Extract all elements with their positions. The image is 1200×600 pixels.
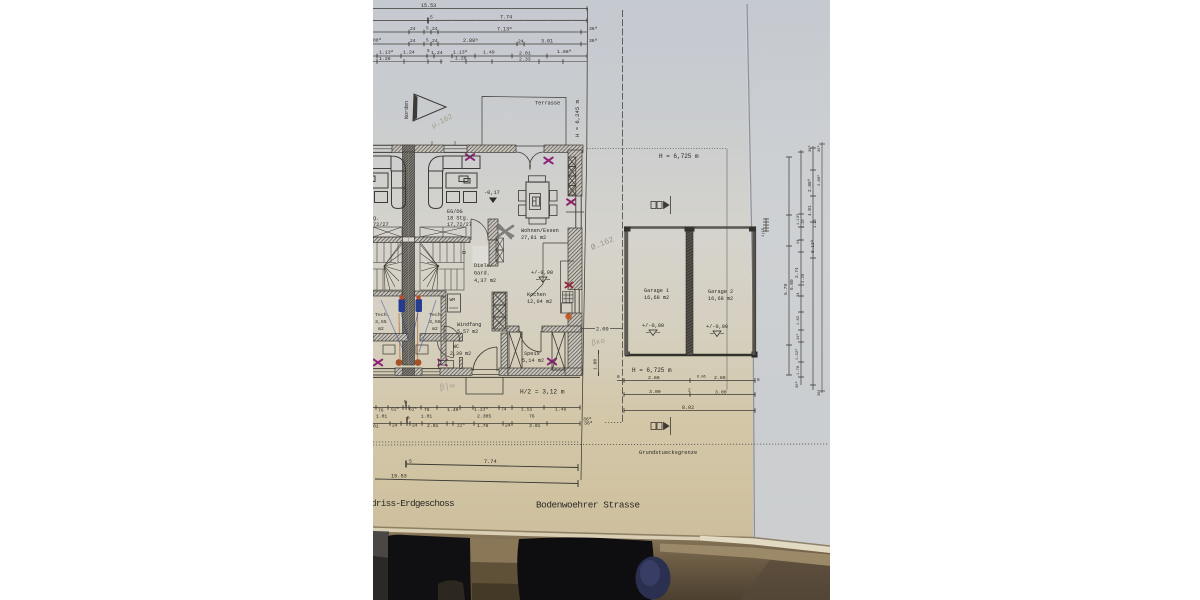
svg-text:1.26: 1.26	[379, 56, 391, 62]
svg-text:7.74: 7.74	[484, 459, 497, 465]
svg-text:Windfang: Windfang	[457, 322, 481, 328]
svg-text:1.13ª: 1.13ª	[796, 214, 801, 225]
svg-text:3,55: 3,55	[375, 319, 387, 325]
svg-text:1.26: 1.26	[802, 219, 806, 228]
svg-text:7.13ª: 7.13ª	[497, 27, 512, 33]
svg-text:7.74: 7.74	[500, 15, 512, 21]
svg-text:2.88ª: 2.88ª	[817, 175, 822, 186]
svg-text:H = 6,725 m: H = 6,725 m	[659, 153, 699, 160]
svg-text:1.13ª: 1.13ª	[474, 407, 488, 413]
svg-text:-0,17: -0,17	[484, 190, 500, 196]
svg-text:5: 5	[430, 15, 433, 21]
svg-text:24: 24	[412, 423, 418, 429]
svg-text:Wohnen/Essen: Wohnen/Essen	[521, 228, 559, 234]
svg-text:1.49: 1.49	[447, 407, 459, 413]
svg-text:8: 8	[617, 374, 620, 380]
svg-text:WC: WC	[453, 344, 459, 350]
svg-text:1.24: 1.24	[431, 50, 443, 56]
svg-text:1.00: 1.00	[593, 359, 599, 370]
svg-text:5: 5	[404, 399, 407, 405]
svg-text:36ª: 36ª	[817, 390, 822, 396]
svg-text:76: 76	[378, 408, 384, 414]
svg-text:5.79: 5.79	[783, 284, 789, 295]
svg-text:Norden: Norden	[404, 101, 410, 119]
svg-text:01: 01	[373, 424, 379, 430]
svg-text:1.01: 1.01	[376, 414, 387, 420]
svg-text:2.00: 2.00	[596, 327, 609, 333]
svg-text:11ª: 11ª	[796, 334, 801, 340]
svg-text:36ª: 36ª	[583, 417, 592, 423]
svg-text:16,68 m2: 16,68 m2	[644, 295, 669, 301]
svg-text:3.01: 3.01	[529, 423, 541, 429]
svg-text:2.74: 2.74	[794, 267, 800, 278]
svg-text:5: 5	[409, 459, 412, 465]
svg-text:5: 5	[426, 26, 429, 32]
svg-text:8.13ª: 8.13ª	[810, 239, 816, 253]
svg-text:+/-0,00: +/-0,00	[531, 270, 553, 276]
svg-text:36ª: 36ª	[795, 381, 800, 388]
svg-text:61ª: 61ª	[409, 407, 417, 413]
svg-text:2.88: 2.88	[648, 375, 660, 381]
svg-text:24: 24	[797, 239, 801, 244]
svg-text:3.00: 3.00	[649, 389, 661, 395]
svg-text:4,37 m2: 4,37 m2	[474, 278, 496, 284]
svg-text:H = 6,725 m: H = 6,725 m	[632, 367, 672, 374]
svg-text:H/2 = 3,12 m: H/2 = 3,12 m	[520, 389, 565, 396]
svg-text:1.88ª: 1.88ª	[557, 49, 572, 55]
svg-text:27,81 m2: 27,81 m2	[521, 235, 546, 241]
svg-text:11ª: 11ª	[457, 423, 465, 429]
svg-text:1.78: 1.78	[477, 423, 489, 429]
svg-text:5: 5	[426, 38, 429, 44]
svg-text:1.49: 1.49	[555, 407, 567, 413]
svg-text:2.305: 2.305	[477, 414, 491, 420]
svg-text:2: 2	[688, 388, 691, 394]
svg-text:H = 6,245 m: H = 6,245 m	[574, 99, 581, 137]
svg-text:24: 24	[505, 423, 511, 429]
svg-text:Terrasse: Terrasse	[535, 101, 560, 107]
svg-text:5: 5	[427, 48, 430, 54]
svg-text:74: 74	[501, 407, 507, 413]
svg-text:8: 8	[757, 377, 760, 383]
svg-text:24: 24	[410, 26, 416, 32]
svg-text:2.88ª: 2.88ª	[807, 178, 813, 192]
svg-text:2.33: 2.33	[519, 57, 531, 63]
svg-text:2,39 m2: 2,39 m2	[450, 351, 471, 357]
svg-text:1.26: 1.26	[455, 56, 467, 62]
svg-text:2.28: 2.28	[802, 273, 806, 283]
svg-text:24: 24	[410, 38, 416, 44]
svg-text:76: 76	[529, 414, 535, 420]
svg-text:+/-0,00: +/-0,00	[642, 323, 664, 329]
svg-text:Gard.: Gard.	[474, 271, 490, 277]
svg-text:1.24: 1.24	[403, 50, 415, 56]
svg-text:24: 24	[432, 26, 438, 32]
svg-text:16,68 m2: 16,68 m2	[708, 296, 733, 302]
svg-text:2.01: 2.01	[519, 51, 531, 57]
svg-text:3.01: 3.01	[541, 39, 553, 45]
svg-text:EG/OG: EG/OG	[447, 209, 463, 215]
svg-text:76: 76	[424, 407, 430, 413]
svg-text:36ª: 36ª	[817, 145, 822, 152]
svg-text:1.13ª: 1.13ª	[453, 50, 468, 56]
svg-text:5: 5	[407, 415, 410, 421]
svg-text:36ª: 36ª	[589, 26, 598, 32]
svg-text:1.82: 1.82	[797, 315, 801, 325]
svg-text:5,14 m2: 5,14 m2	[522, 358, 544, 364]
svg-text:24: 24	[392, 423, 398, 429]
svg-text:+/-0,00: +/-0,00	[706, 324, 728, 330]
svg-text:3.00: 3.00	[715, 390, 727, 396]
svg-text:24: 24	[518, 39, 524, 45]
svg-text:1.13ª: 1.13ª	[379, 50, 394, 56]
svg-text:1.78: 1.78	[797, 365, 801, 375]
svg-text:4.01: 4.01	[807, 205, 813, 216]
svg-text:1.49: 1.49	[483, 50, 495, 56]
svg-text:Grundstuecksgrenze: Grundstuecksgrenze	[639, 450, 697, 456]
svg-text:8.02: 8.02	[682, 405, 694, 411]
svg-text:g.: g.	[373, 216, 379, 222]
svg-text:15.53: 15.53	[421, 3, 436, 9]
svg-text:61ª: 61ª	[391, 407, 399, 413]
svg-text:2.88: 2.88	[714, 375, 726, 381]
svg-text:Garage 1: Garage 1	[644, 288, 669, 294]
svg-text:1|15: 1|15	[761, 227, 766, 237]
svg-text:17,72/27: 17,72/27	[447, 222, 472, 228]
svg-text:72/27: 72/27	[373, 222, 389, 228]
svg-text:Kochen: Kochen	[527, 292, 546, 298]
svg-text:1.51: 1.51	[521, 407, 533, 413]
svg-text:2.01: 2.01	[427, 423, 439, 429]
svg-text:36ª: 36ª	[589, 38, 598, 44]
svg-text:6.00: 6.00	[789, 279, 795, 290]
svg-text:1.01: 1.01	[421, 414, 432, 420]
svg-text:Speis: Speis	[524, 351, 540, 357]
svg-text:Garage 2: Garage 2	[708, 289, 733, 295]
svg-text:18 Stg.: 18 Stg.	[447, 216, 469, 222]
svg-text:1.26: 1.26	[814, 219, 818, 228]
svg-text:Bodenwoehrer Strasse: Bodenwoehrer Strasse	[536, 500, 640, 511]
svg-text:36ª: 36ª	[808, 145, 813, 152]
svg-text:driss-Erdgeschoss: driss-Erdgeschoss	[371, 498, 454, 509]
svg-text:24: 24	[797, 292, 801, 297]
svg-text:12,04 m2: 12,04 m2	[527, 299, 552, 305]
svg-text:3,55: 3,55	[429, 319, 441, 325]
svg-text:β|∞: β|∞	[439, 381, 456, 393]
svg-text:Diele/: Diele/	[474, 263, 493, 269]
svg-text:5,57 m2: 5,57 m2	[457, 329, 478, 335]
svg-text:2.88ª: 2.88ª	[463, 38, 478, 44]
svg-text:15.53: 15.53	[391, 474, 407, 480]
svg-text:WM: WM	[450, 297, 456, 303]
svg-text:1.32ª: 1.32ª	[795, 349, 800, 360]
svg-text:24: 24	[432, 38, 438, 44]
svg-text:m2: m2	[378, 326, 384, 332]
svg-text:6.06: 6.06	[697, 376, 706, 380]
svg-text:88ª: 88ª	[373, 38, 382, 44]
svg-text:m2: m2	[432, 326, 438, 332]
